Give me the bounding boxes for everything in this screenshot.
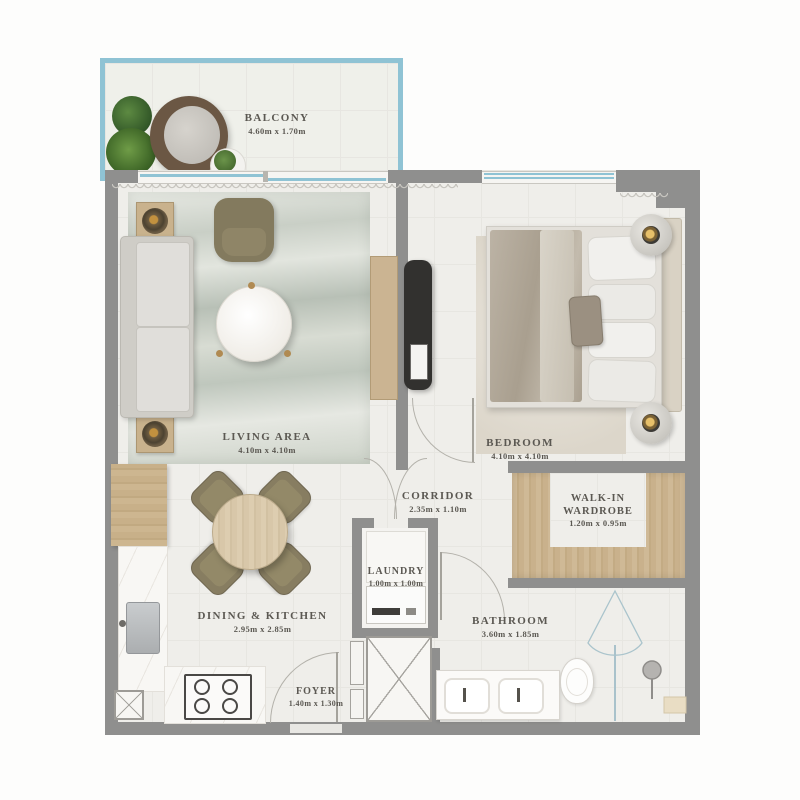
bedroom-window-glass (484, 177, 614, 179)
sliding-door-glass (265, 178, 386, 181)
coffee-table-leg (216, 350, 223, 357)
shower-head-icon (643, 661, 661, 679)
sofa-cushion (136, 327, 190, 412)
burner-icon (222, 679, 238, 695)
side-table-plant (136, 202, 174, 240)
room-dims: 2.95m x 2.85m (170, 624, 355, 635)
curtain-bedroom (620, 193, 668, 200)
side-table-plant (136, 415, 174, 453)
coffee-table-leg (284, 350, 291, 357)
coffee-table-leg (248, 282, 255, 289)
nightstand (630, 214, 672, 256)
washing-machine-panel (372, 608, 400, 615)
wall-top-right-corner (616, 170, 700, 192)
stove (184, 674, 252, 720)
armchair-seat (222, 228, 266, 256)
dining-table (212, 494, 288, 570)
living-label: LIVING AREA 4.10m x 4.10m (187, 431, 347, 455)
kitchen-corner-shaft (114, 690, 144, 720)
room-dims: 4.60m x 1.70m (197, 126, 357, 137)
room-name: DINING & KITCHEN (170, 610, 355, 624)
bed-pillow (587, 359, 656, 403)
foyer-label: FOYER 1.40m x 1.30m (257, 686, 375, 709)
kitchen-faucet-icon (119, 620, 126, 627)
washing-machine (366, 586, 426, 624)
room-name: FOYER (257, 686, 375, 699)
washing-machine-knob (406, 608, 416, 615)
media-console (370, 256, 398, 400)
laundry-label: LAUNDRY 1.00m x 1.00m (350, 566, 442, 589)
sofa-cushion (136, 242, 190, 327)
room-dims: 1.00m x 1.00m (350, 579, 442, 589)
kitchen-sink (126, 602, 160, 654)
wall-laundry-right-top (408, 518, 438, 528)
bathroom-label: BATHROOM 3.60m x 1.85m (428, 615, 593, 639)
room-dims: 1.20m x 0.95m (550, 518, 646, 529)
entry-threshold (290, 724, 342, 733)
room-name: LAUNDRY (350, 566, 442, 579)
lamp-icon (642, 414, 660, 432)
sliding-door-mullion (263, 171, 268, 182)
room-dims: 1.40m x 1.30m (257, 699, 375, 709)
balcony-table-plant-icon (214, 150, 236, 172)
burner-icon (194, 679, 210, 695)
bedroom-window-glass (484, 173, 614, 175)
shower-area (430, 585, 700, 725)
room-dims: 4.10m x 4.10m (187, 445, 347, 456)
wall-bedroom-south (508, 461, 700, 473)
duct-box (350, 641, 364, 685)
nightstand (630, 402, 672, 444)
burner-icon (222, 698, 238, 714)
wall-top-left-corner (105, 170, 138, 183)
plant-pot-icon (142, 208, 168, 234)
sliding-door-glass (140, 174, 267, 177)
shower-tray (664, 697, 686, 713)
lamp-icon (642, 226, 660, 244)
room-name: LIVING AREA (187, 431, 347, 445)
tv-screen (410, 344, 428, 380)
kitchen-tall-cabinet (111, 464, 167, 546)
balcony-label: BALCONY 4.60m x 1.70m (197, 112, 357, 136)
room-name: BALCONY (197, 112, 357, 126)
floor-plan: BALCONY 4.60m x 1.70m LIVING A (0, 0, 800, 800)
dining-label: DINING & KITCHEN 2.95m x 2.85m (170, 610, 355, 634)
wall-left (105, 170, 118, 735)
coffee-table (216, 286, 292, 362)
room-dims: 3.60m x 1.85m (428, 629, 593, 640)
room-name: BATHROOM (428, 615, 593, 629)
room-name: WALK-IN WARDROBE (550, 492, 646, 518)
plant-pot-icon (142, 421, 168, 447)
wall-laundry-left (352, 518, 374, 528)
wall-top-mid (388, 170, 482, 183)
curtain-living (112, 184, 458, 191)
burner-icon (194, 698, 210, 714)
service-shaft (366, 636, 432, 722)
wardrobe-label: WALK-IN WARDROBE 1.20m x 0.95m (550, 492, 646, 529)
bed-accent-cushion (568, 295, 603, 347)
bedroom-door-leaf (472, 398, 474, 462)
balcony-plant-icon (106, 128, 156, 176)
